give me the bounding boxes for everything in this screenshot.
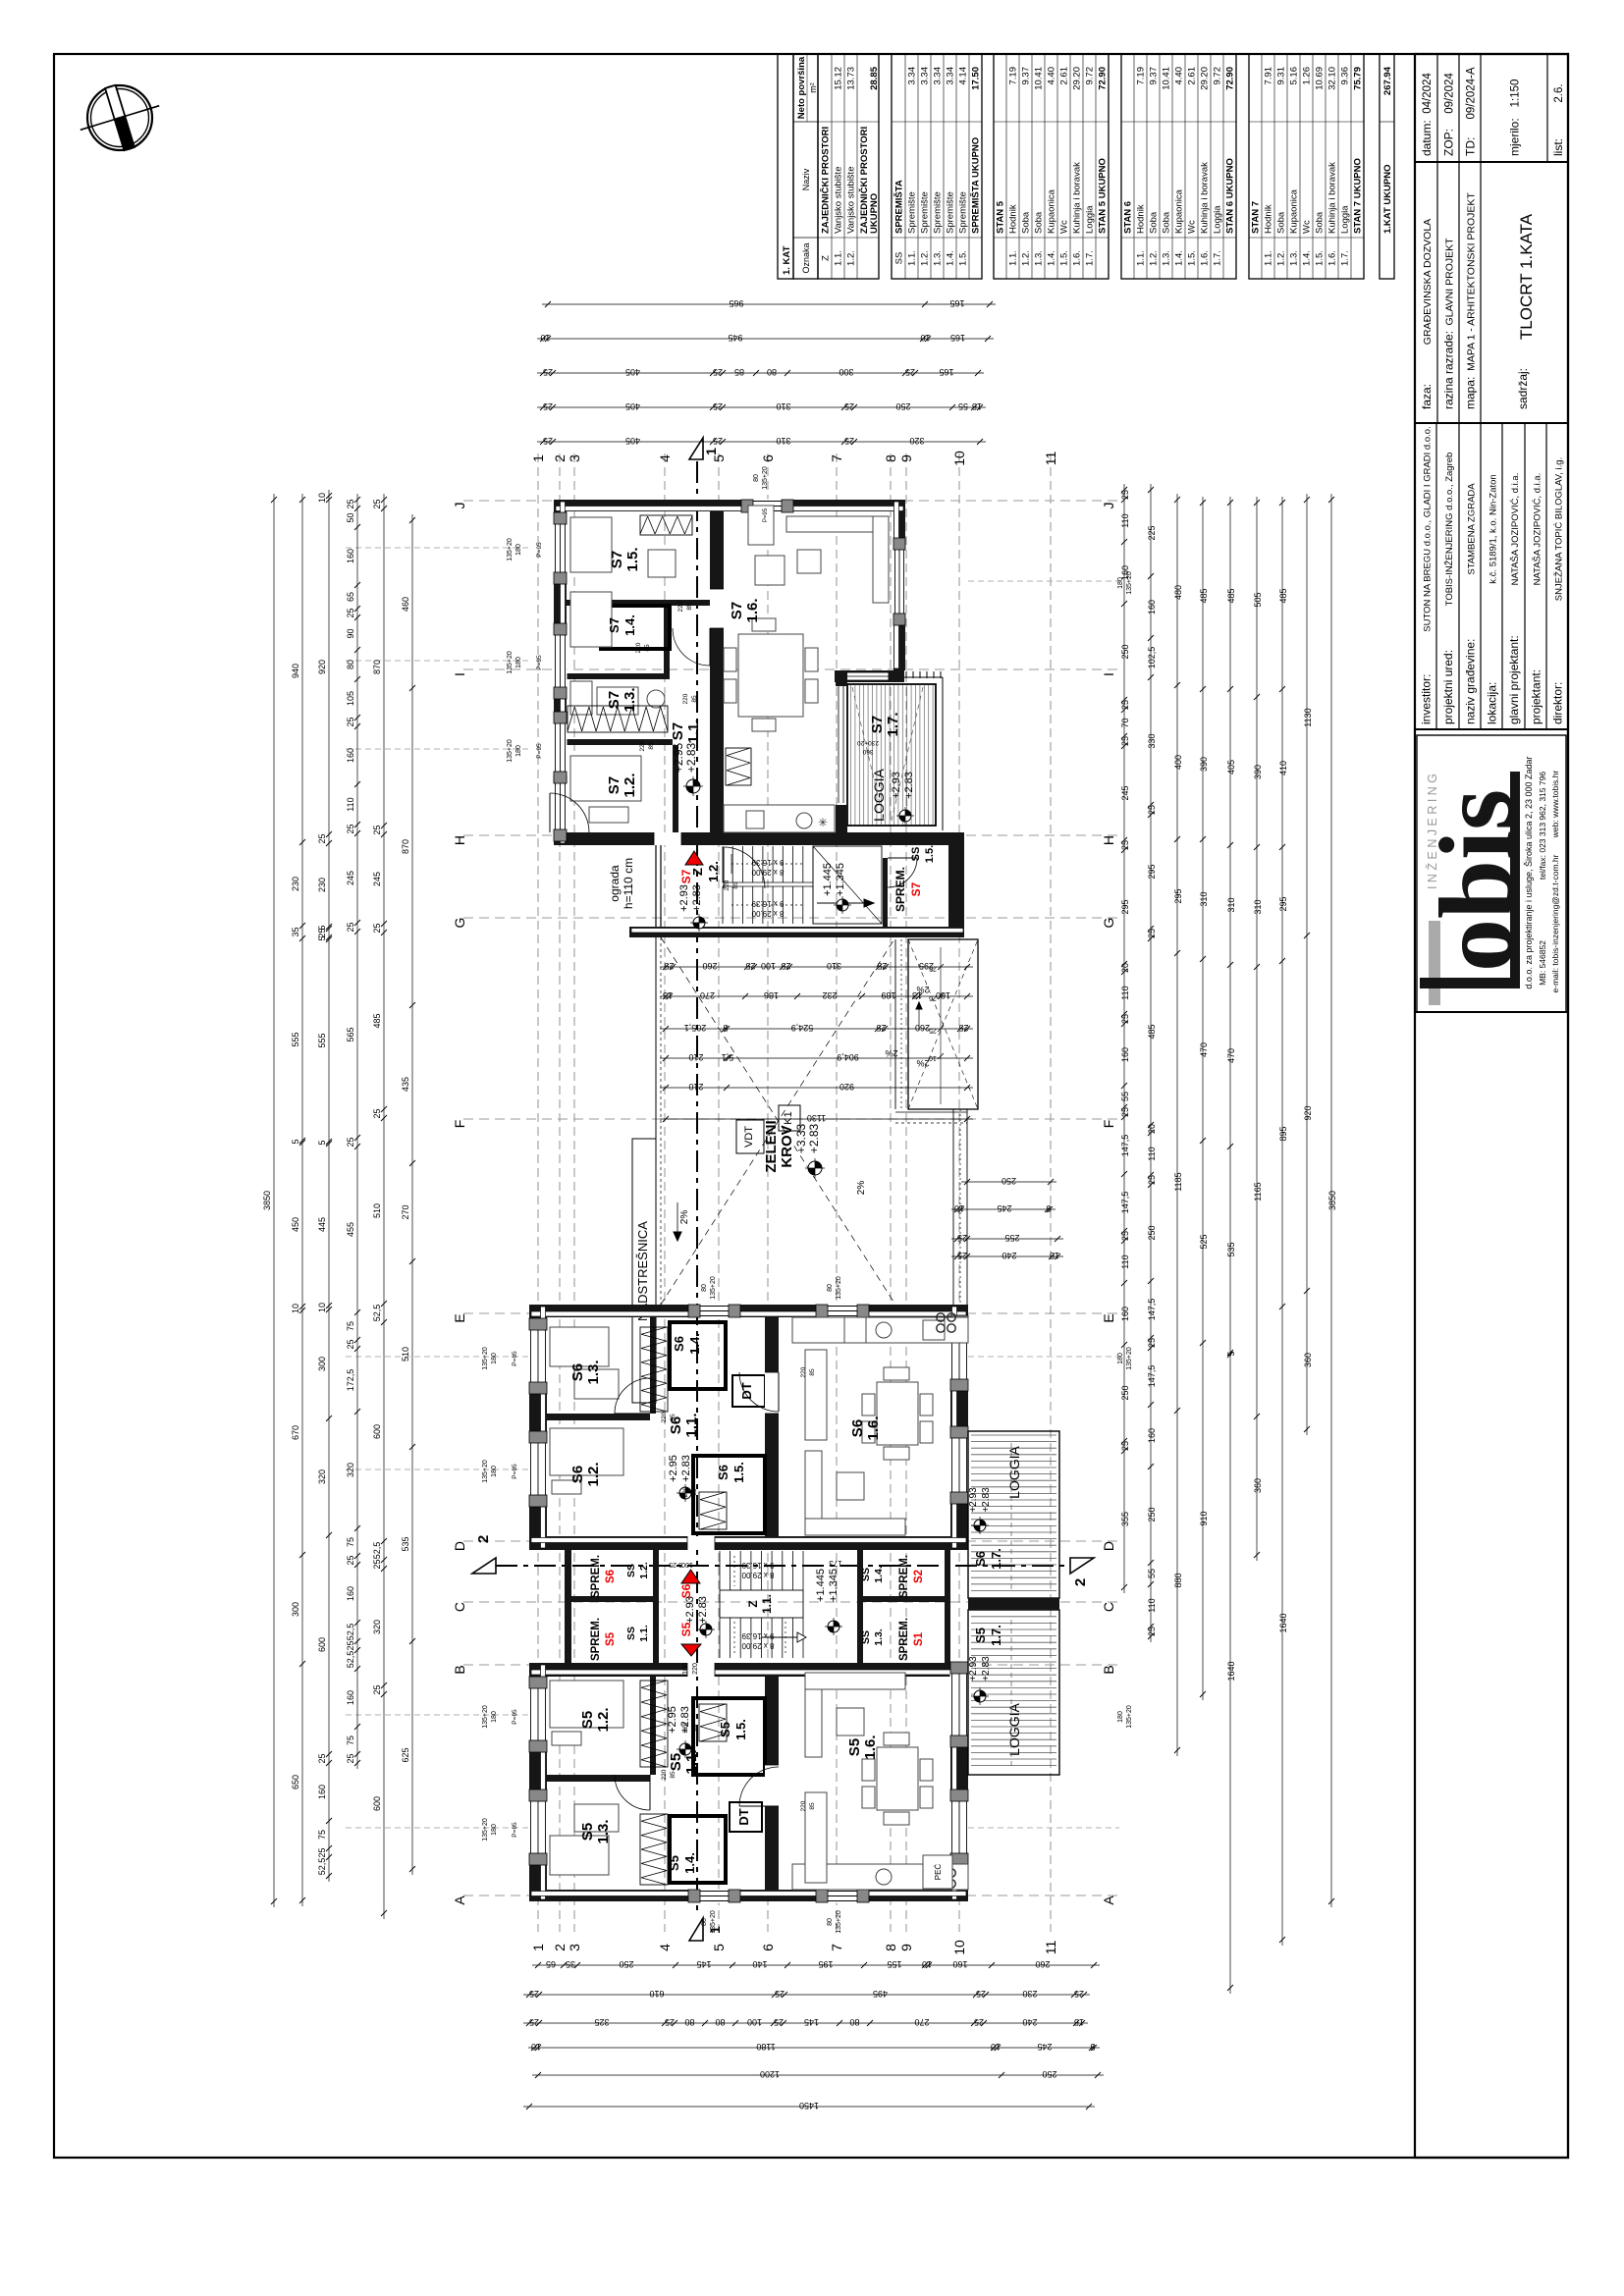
svg-text:1.1.: 1.1. <box>638 1625 650 1642</box>
svg-text:230: 230 <box>291 877 300 891</box>
svg-text:445: 445 <box>317 1217 327 1232</box>
svg-text:J: J <box>452 503 467 509</box>
svg-text:D: D <box>1101 1541 1116 1551</box>
svg-text:310: 310 <box>776 401 790 411</box>
svg-text:85: 85 <box>686 603 693 611</box>
svg-text:880: 880 <box>1173 1573 1183 1587</box>
svg-text:85: 85 <box>691 1724 698 1732</box>
svg-text:5 25: 5 25 <box>669 1561 682 1568</box>
svg-text:7: 7 <box>829 454 844 462</box>
svg-text:STAN 7: STAN 7 <box>1251 201 1262 234</box>
svg-text:1.7.: 1.7. <box>989 1625 1003 1646</box>
svg-text:25: 25 <box>529 1989 539 1999</box>
svg-text:9 x 16.39: 9 x 16.39 <box>741 1561 774 1570</box>
svg-text:1.5.: 1.5. <box>1315 250 1326 266</box>
svg-text:25: 25 <box>664 961 674 971</box>
svg-text:270: 270 <box>700 990 715 1000</box>
svg-text:Soba: Soba <box>1034 211 1045 234</box>
svg-text:135+20: 135+20 <box>762 466 769 490</box>
svg-text:525: 525 <box>1199 1234 1209 1249</box>
svg-text:5: 5 <box>317 935 327 940</box>
svg-text:Soba: Soba <box>1149 211 1160 234</box>
svg-text:Z: Z <box>821 255 832 261</box>
svg-text:8 x 29.00: 8 x 29.00 <box>751 868 784 877</box>
svg-text:ZAJEDNIČKI PROSTORI: ZAJEDNIČKI PROSTORI <box>820 127 832 234</box>
svg-text:✳: ✳ <box>818 816 828 829</box>
svg-text:230: 230 <box>1022 1989 1037 1999</box>
svg-text:267.94: 267.94 <box>1382 66 1393 95</box>
svg-text:510: 510 <box>401 1347 410 1362</box>
svg-text:1.4.: 1.4. <box>623 614 637 636</box>
svg-text:S7: S7 <box>606 776 623 794</box>
svg-text:+1.345: +1.345 <box>835 863 846 896</box>
svg-text:260: 260 <box>1035 1959 1050 1969</box>
svg-text:projektni ured:: projektni ured: <box>1441 650 1455 724</box>
svg-text:110: 110 <box>1147 1147 1157 1160</box>
svg-text:1.2.: 1.2. <box>846 250 857 266</box>
svg-text:90: 90 <box>346 628 355 638</box>
svg-text:GRAĐEVINSKA DOZVOLA: GRAĐEVINSKA DOZVOLA <box>1422 219 1434 345</box>
svg-text:7.19: 7.19 <box>1008 67 1019 85</box>
svg-text:Kuhinja i boravak: Kuhinja i boravak <box>1200 162 1211 234</box>
svg-text:1.5.: 1.5. <box>733 1719 748 1740</box>
svg-text:1.2.: 1.2. <box>1149 250 1160 266</box>
svg-text:4.40: 4.40 <box>1174 67 1185 85</box>
svg-text:75: 75 <box>317 1830 327 1840</box>
svg-text:+2.93: +2.93 <box>968 1656 979 1682</box>
svg-text:S7: S7 <box>869 716 886 733</box>
svg-text:S5: S5 <box>605 1631 617 1646</box>
svg-text:Naziv: Naziv <box>801 168 811 190</box>
svg-text:+2.83: +2.83 <box>697 1596 709 1624</box>
svg-text:SPREM.: SPREM. <box>898 1618 910 1661</box>
svg-text:1.7.: 1.7. <box>989 1548 1003 1570</box>
svg-text:100: 100 <box>761 961 776 971</box>
svg-text:9.37: 9.37 <box>1149 67 1160 85</box>
svg-text:25: 25 <box>372 1559 382 1569</box>
svg-text:glavni projektant:: glavni projektant: <box>1507 635 1521 724</box>
svg-text:2%: 2% <box>885 1048 897 1058</box>
svg-text:4.14: 4.14 <box>958 67 969 85</box>
svg-text:9: 9 <box>898 454 914 462</box>
svg-text:25: 25 <box>974 2017 984 2027</box>
svg-text:10: 10 <box>951 451 967 466</box>
svg-text:250: 250 <box>1147 1507 1157 1522</box>
svg-text:25: 25 <box>346 1137 355 1147</box>
svg-text:165: 165 <box>950 333 965 343</box>
svg-text:100: 100 <box>747 2017 762 2027</box>
svg-text:11: 11 <box>1043 1941 1058 1955</box>
svg-text:555: 555 <box>291 1032 300 1046</box>
svg-text:55: 55 <box>958 401 968 411</box>
svg-text:P=95: P=95 <box>512 1351 518 1366</box>
svg-text:LOGGIA: LOGGIA <box>1006 1702 1022 1755</box>
svg-text:3.34: 3.34 <box>946 67 956 85</box>
svg-text:72.90: 72.90 <box>1225 67 1236 90</box>
svg-text:K1: K1 <box>783 1111 794 1124</box>
svg-text:Hodnik: Hodnik <box>1008 204 1019 234</box>
svg-text:P=95: P=95 <box>763 507 769 522</box>
svg-text:2: 2 <box>552 454 568 462</box>
svg-text:405: 405 <box>625 367 640 377</box>
svg-text:105: 105 <box>346 691 355 706</box>
svg-text:25: 25 <box>877 961 887 971</box>
svg-text:70: 70 <box>1120 718 1130 727</box>
svg-text:25: 25 <box>876 1023 886 1033</box>
svg-text:10: 10 <box>291 1304 300 1313</box>
svg-text:29.20: 29.20 <box>1200 67 1211 90</box>
svg-text:SS: SS <box>860 1630 872 1644</box>
svg-text:320: 320 <box>346 1463 355 1477</box>
svg-text:110: 110 <box>346 797 355 811</box>
svg-text:25: 25 <box>844 401 854 411</box>
svg-text:1. KAT: 1. KAT <box>782 245 792 275</box>
svg-text:Soba: Soba <box>1276 211 1287 234</box>
svg-text:10: 10 <box>922 1959 932 1969</box>
svg-text:470: 470 <box>1226 1048 1236 1063</box>
svg-text:P=95: P=95 <box>512 1464 518 1479</box>
svg-text:245: 245 <box>1037 2042 1052 2052</box>
svg-text:2: 2 <box>1072 1578 1089 1586</box>
svg-text:4: 4 <box>657 1944 673 1951</box>
svg-text:S6: S6 <box>849 1419 866 1437</box>
svg-text:25: 25 <box>713 401 723 411</box>
svg-text:25: 25 <box>346 608 355 617</box>
svg-text:Wc: Wc <box>1059 220 1070 234</box>
svg-text:80: 80 <box>767 367 777 377</box>
svg-text:555: 555 <box>317 1033 327 1047</box>
svg-text:410: 410 <box>1278 761 1288 775</box>
svg-text:13.73: 13.73 <box>846 67 857 90</box>
svg-text:TOBIS-INŽENJERING d.o.o., Zagr: TOBIS-INŽENJERING d.o.o., Zagreb <box>1444 453 1455 607</box>
svg-text:25: 25 <box>1120 1441 1130 1451</box>
svg-text:1.1.: 1.1. <box>1136 250 1147 266</box>
svg-text:600: 600 <box>372 1796 382 1811</box>
svg-text:+2.95: +2.95 <box>672 742 685 773</box>
svg-text:mapa:: mapa: <box>1464 377 1478 409</box>
svg-text:2: 2 <box>475 1535 492 1543</box>
svg-text:SPREMIŠTA UKUPNO: SPREMIŠTA UKUPNO <box>970 137 982 234</box>
svg-text:G: G <box>1101 918 1116 929</box>
svg-text:lokacija:: lokacija: <box>1486 682 1499 724</box>
svg-text:65: 65 <box>346 592 355 602</box>
svg-text:495: 495 <box>873 1989 888 1999</box>
svg-text:Kupaonica: Kupaonica <box>1174 188 1185 234</box>
svg-text:920: 920 <box>1303 1105 1313 1120</box>
svg-text:P=95: P=95 <box>536 655 543 670</box>
svg-text:600: 600 <box>317 1637 327 1652</box>
svg-text:15: 15 <box>663 990 673 1000</box>
svg-text:52,5: 52,5 <box>372 1305 382 1322</box>
svg-text:1.4.: 1.4. <box>1302 250 1313 266</box>
svg-text:+2.93: +2.93 <box>678 884 690 912</box>
svg-text:270: 270 <box>914 2017 929 2027</box>
svg-text:180: 180 <box>515 745 522 757</box>
svg-text:25: 25 <box>346 824 355 833</box>
svg-text:8: 8 <box>883 1944 898 1951</box>
svg-text:H: H <box>452 835 467 845</box>
svg-text:310: 310 <box>1226 897 1236 912</box>
svg-text:2%: 2% <box>916 1058 929 1068</box>
svg-text:1.6.: 1.6. <box>865 1415 882 1440</box>
svg-text:10.41: 10.41 <box>1162 67 1172 90</box>
svg-text:205,1: 205,1 <box>684 1023 707 1033</box>
svg-text:Wc: Wc <box>1187 220 1198 234</box>
svg-text:+2.93: +2.93 <box>684 1596 696 1624</box>
svg-text:MB: 546852: MB: 546852 <box>1538 940 1547 986</box>
svg-text:A: A <box>1101 1896 1116 1905</box>
svg-text:2.61: 2.61 <box>1187 67 1198 85</box>
svg-text:180: 180 <box>515 657 522 668</box>
svg-text:135+20: 135+20 <box>836 1910 842 1934</box>
svg-text:25: 25 <box>1147 805 1157 815</box>
svg-text:25: 25 <box>1120 1014 1130 1024</box>
svg-text:260: 260 <box>915 1023 930 1033</box>
svg-text:4.40: 4.40 <box>1047 67 1057 85</box>
svg-text:1.4.: 1.4. <box>946 250 956 266</box>
svg-text:32.10: 32.10 <box>1327 67 1338 90</box>
svg-text:110: 110 <box>1120 986 1130 999</box>
svg-text:485: 485 <box>1199 588 1209 603</box>
svg-text:29.20: 29.20 <box>1072 67 1083 90</box>
svg-text:25: 25 <box>665 2017 675 2027</box>
svg-text:310: 310 <box>776 436 790 446</box>
svg-text:1.5.: 1.5. <box>624 547 641 571</box>
svg-text:15: 15 <box>1050 1251 1059 1260</box>
svg-text:Vanjsko stubište: Vanjsko stubište <box>846 167 857 234</box>
svg-text:25: 25 <box>775 1989 785 1999</box>
svg-text:S7: S7 <box>729 602 745 619</box>
svg-text:455: 455 <box>346 1222 355 1237</box>
svg-text:GLAVNI PROJEKT: GLAVNI PROJEKT <box>1444 238 1456 326</box>
svg-text:160: 160 <box>346 1690 355 1705</box>
svg-text:5: 5 <box>723 1023 728 1033</box>
svg-text:10: 10 <box>954 1203 964 1213</box>
svg-text:m²: m² <box>808 82 818 93</box>
svg-text:220: 220 <box>639 740 646 751</box>
svg-text:S7: S7 <box>607 617 622 633</box>
svg-text:135+20: 135+20 <box>507 739 514 763</box>
svg-text:320: 320 <box>372 1620 382 1634</box>
svg-text:390: 390 <box>1253 765 1263 779</box>
svg-text:25: 25 <box>543 401 553 411</box>
svg-text:1450: 1450 <box>799 2101 819 2110</box>
svg-text:1.1.: 1.1. <box>907 250 918 266</box>
svg-text:SS: SS <box>625 1627 637 1640</box>
svg-text:220: 220 <box>682 693 689 704</box>
svg-text:1.6.: 1.6. <box>1327 250 1338 266</box>
svg-text:85: 85 <box>670 1771 677 1779</box>
svg-text:1.2.: 1.2. <box>638 1562 650 1579</box>
svg-text:1.3.: 1.3. <box>873 1629 885 1646</box>
svg-text:145: 145 <box>696 1959 711 1969</box>
svg-text:9.36: 9.36 <box>1340 67 1351 85</box>
svg-text:295: 295 <box>919 961 934 971</box>
svg-text:3: 3 <box>567 1944 582 1951</box>
svg-text:TD:: TD: <box>1464 137 1478 156</box>
svg-text:P=95: P=95 <box>536 542 543 558</box>
svg-text:25: 25 <box>346 499 355 508</box>
svg-text:320: 320 <box>909 436 924 446</box>
svg-text:480: 480 <box>1173 585 1183 600</box>
svg-text:485: 485 <box>372 1013 382 1028</box>
svg-text:230: 230 <box>317 878 327 892</box>
svg-text:direktor:: direktor: <box>1551 682 1565 724</box>
svg-text:210: 210 <box>688 1052 703 1062</box>
svg-text:F: F <box>1101 1120 1116 1129</box>
svg-text:1130: 1130 <box>1303 708 1313 726</box>
svg-text:625: 625 <box>401 1747 410 1762</box>
svg-text:147,5: 147,5 <box>1120 1192 1130 1214</box>
svg-text:405: 405 <box>625 401 640 411</box>
svg-text:8 x 29.00: 8 x 29.00 <box>751 909 784 918</box>
svg-text:75: 75 <box>346 1735 355 1745</box>
svg-text:1.1.: 1.1. <box>685 719 702 743</box>
svg-text:1: 1 <box>703 448 719 455</box>
svg-text:NATAŠA JOZIPOVIĆ, d.i.a.: NATAŠA JOZIPOVIĆ, d.i.a. <box>1533 473 1543 586</box>
svg-text:SPREM.: SPREM. <box>898 1555 910 1598</box>
svg-text:135+20: 135+20 <box>1126 1705 1133 1729</box>
svg-text:k.č. 5189/1, k.o. Nin-Zaton: k.č. 5189/1, k.o. Nin-Zaton <box>1489 474 1499 583</box>
svg-text:5,1: 5,1 <box>722 1052 734 1062</box>
svg-text:1.26: 1.26 <box>1302 67 1313 85</box>
svg-text:1.5.: 1.5. <box>958 250 969 266</box>
svg-text:+2.95: +2.95 <box>667 1706 678 1734</box>
svg-text:25: 25 <box>543 367 553 377</box>
svg-text:STAN 6: STAN 6 <box>1123 201 1134 234</box>
svg-text:524,9: 524,9 <box>791 1023 814 1033</box>
svg-text:1.2.: 1.2. <box>706 861 721 882</box>
svg-text:1180: 1180 <box>756 2042 775 2052</box>
svg-text:135+20: 135+20 <box>507 651 514 674</box>
svg-text:85: 85 <box>732 881 739 889</box>
svg-text:25: 25 <box>529 2017 539 2027</box>
svg-text:100: 100 <box>682 1663 689 1675</box>
svg-text:1.4.: 1.4. <box>873 1566 885 1583</box>
svg-text:25: 25 <box>346 1555 355 1565</box>
svg-text:25: 25 <box>745 961 755 971</box>
svg-text:3.34: 3.34 <box>920 67 931 85</box>
svg-text:250: 250 <box>619 1959 633 1969</box>
svg-text:20: 20 <box>1147 1124 1157 1134</box>
svg-text:1640: 1640 <box>1278 1613 1288 1632</box>
svg-text:SS: SS <box>894 252 905 265</box>
svg-text:2%: 2% <box>679 1210 690 1225</box>
svg-text:52,5: 52,5 <box>372 1542 382 1560</box>
svg-text:S7: S7 <box>909 881 923 896</box>
svg-text:80: 80 <box>684 2017 694 2027</box>
svg-text:180: 180 <box>936 990 950 1000</box>
svg-text:160: 160 <box>346 748 355 763</box>
svg-text:Neto površina: Neto površina <box>796 56 807 119</box>
svg-text:600: 600 <box>372 1424 382 1439</box>
svg-text:SPREMIŠTA: SPREMIŠTA <box>893 180 905 234</box>
svg-text:Spremište: Spremište <box>946 191 956 234</box>
svg-text:7: 7 <box>829 1944 844 1951</box>
svg-text:25: 25 <box>781 961 790 971</box>
svg-text:920: 920 <box>839 1082 854 1092</box>
svg-text:sadržaj:: sadržaj: <box>1516 368 1530 409</box>
svg-text:220: 220 <box>677 601 684 612</box>
svg-text:25: 25 <box>1120 840 1130 850</box>
svg-text:230+20: 230+20 <box>857 739 879 746</box>
svg-text:1.2.: 1.2. <box>920 250 931 266</box>
svg-text:S7: S7 <box>609 551 625 568</box>
svg-text:+2.83: +2.83 <box>981 1656 992 1682</box>
svg-text:80: 80 <box>346 660 355 669</box>
svg-text:1.5.: 1.5. <box>924 845 936 863</box>
svg-text:S5: S5 <box>973 1628 988 1643</box>
svg-text:5: 5 <box>1046 1203 1051 1213</box>
svg-text:75: 75 <box>346 1537 355 1547</box>
svg-text:A: A <box>452 1896 467 1905</box>
svg-text:DT: DT <box>736 1808 751 1825</box>
svg-text:Kupaonica: Kupaonica <box>1289 188 1300 234</box>
svg-text:160: 160 <box>1120 1047 1130 1062</box>
svg-text:220: 220 <box>800 1800 807 1811</box>
svg-text:1.6.: 1.6. <box>1200 250 1211 266</box>
svg-text:Soba: Soba <box>1315 211 1326 234</box>
svg-text:STAN 7 UKUPNO: STAN 7 UKUPNO <box>1353 158 1364 234</box>
svg-text:1.2.: 1.2. <box>585 1462 602 1486</box>
svg-text:147,5: 147,5 <box>1120 1135 1130 1157</box>
svg-text:52,5: 52,5 <box>346 1624 355 1641</box>
svg-text:25: 25 <box>1074 1989 1084 1999</box>
svg-text:165: 165 <box>949 298 964 308</box>
svg-text:870: 870 <box>401 839 410 854</box>
svg-text:S5: S5 <box>579 1711 596 1729</box>
svg-text:Spremište: Spremište <box>933 191 944 234</box>
svg-text:Kupaonica: Kupaonica <box>1047 188 1057 234</box>
svg-text:7.91: 7.91 <box>1264 67 1274 85</box>
svg-text:Soba: Soba <box>1021 211 1032 234</box>
svg-text:25: 25 <box>346 1640 355 1650</box>
svg-text:G: G <box>452 918 467 929</box>
svg-text:160: 160 <box>1147 600 1157 614</box>
svg-text:1165: 1165 <box>1253 1182 1263 1201</box>
svg-text:25: 25 <box>372 499 382 508</box>
svg-text:1.1.: 1.1. <box>834 250 844 266</box>
svg-text:147,5: 147,5 <box>1147 1365 1157 1388</box>
svg-text:80: 80 <box>849 2017 859 2027</box>
svg-text:15: 15 <box>1074 2017 1084 2027</box>
svg-text:250: 250 <box>1120 644 1130 659</box>
svg-text:510: 510 <box>372 1203 382 1218</box>
svg-text:naziv građevine:: naziv građevine: <box>1464 639 1478 724</box>
svg-text:razina razrade:: razina razrade: <box>1442 331 1456 409</box>
svg-text:1.1.: 1.1. <box>683 1413 700 1437</box>
svg-text:25: 25 <box>905 367 915 377</box>
svg-text:Kuhinja i boravak: Kuhinja i boravak <box>1327 162 1338 234</box>
svg-text:+2.83: +2.83 <box>981 1487 992 1513</box>
svg-text:Spremište: Spremište <box>907 191 918 234</box>
svg-text:1.4.: 1.4. <box>687 1333 702 1355</box>
svg-text:S5: S5 <box>846 1738 863 1756</box>
svg-text:25: 25 <box>372 1108 382 1118</box>
svg-text:S7: S7 <box>606 691 623 709</box>
svg-text:135+20: 135+20 <box>710 1910 717 1934</box>
svg-text:8 x 29.00: 8 x 29.00 <box>741 1571 774 1579</box>
svg-text:400: 400 <box>1173 755 1183 770</box>
svg-text:1: 1 <box>530 454 546 462</box>
svg-text:80: 80 <box>715 2017 725 2027</box>
svg-text:85: 85 <box>691 695 698 703</box>
svg-text:3850: 3850 <box>1327 1191 1337 1210</box>
svg-text:P=95: P=95 <box>512 1709 518 1725</box>
svg-text:320: 320 <box>317 1469 327 1484</box>
svg-text:KROV: KROV <box>779 1125 795 1167</box>
svg-text:135+20: 135+20 <box>836 1276 842 1300</box>
